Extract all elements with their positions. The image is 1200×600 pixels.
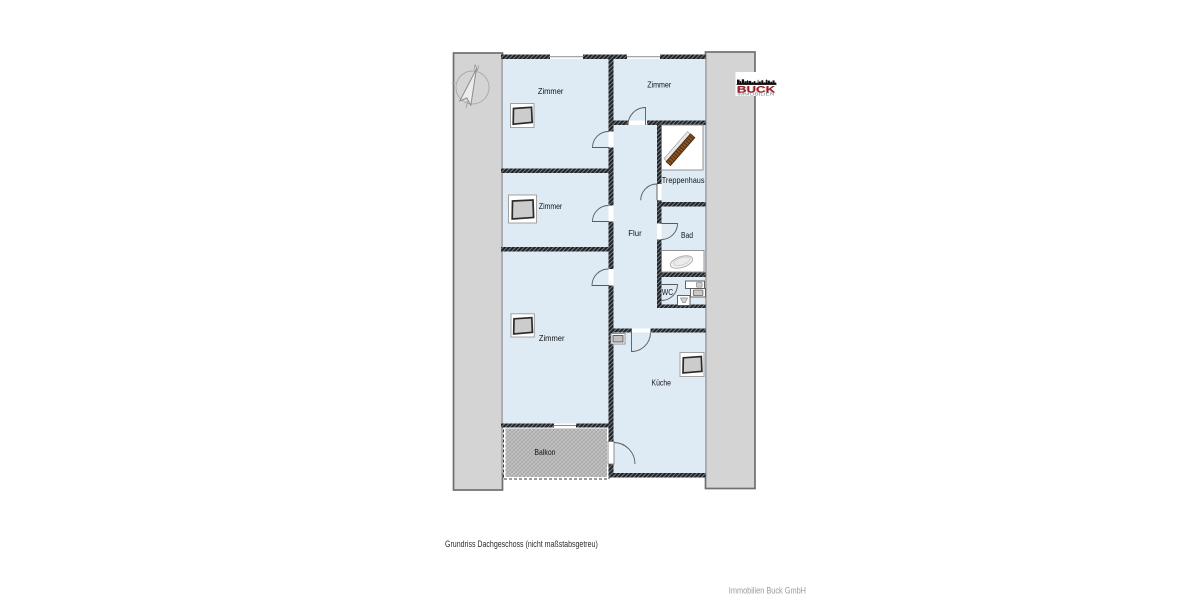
svg-text:Flur: Flur [628, 228, 642, 238]
svg-text:Zimmer: Zimmer [539, 333, 565, 343]
svg-text:IMMOBILIEN: IMMOBILIEN [737, 92, 774, 97]
svg-text:Küche: Küche [652, 378, 672, 388]
svg-text:Immobilien Buck GmbH: Immobilien Buck GmbH [729, 585, 806, 595]
svg-text:Bad: Bad [681, 230, 693, 240]
svg-text:Zimmer: Zimmer [647, 80, 671, 90]
svg-text:Zimmer: Zimmer [539, 201, 562, 211]
svg-text:Zimmer: Zimmer [538, 86, 564, 96]
svg-text:Treppenhaus: Treppenhaus [662, 175, 705, 185]
svg-text:Balkon: Balkon [534, 447, 555, 457]
svg-text:WC: WC [662, 287, 673, 297]
svg-text:Grundriss Dachgeschoss (nicht: Grundriss Dachgeschoss (nicht maßstabsge… [445, 539, 598, 549]
